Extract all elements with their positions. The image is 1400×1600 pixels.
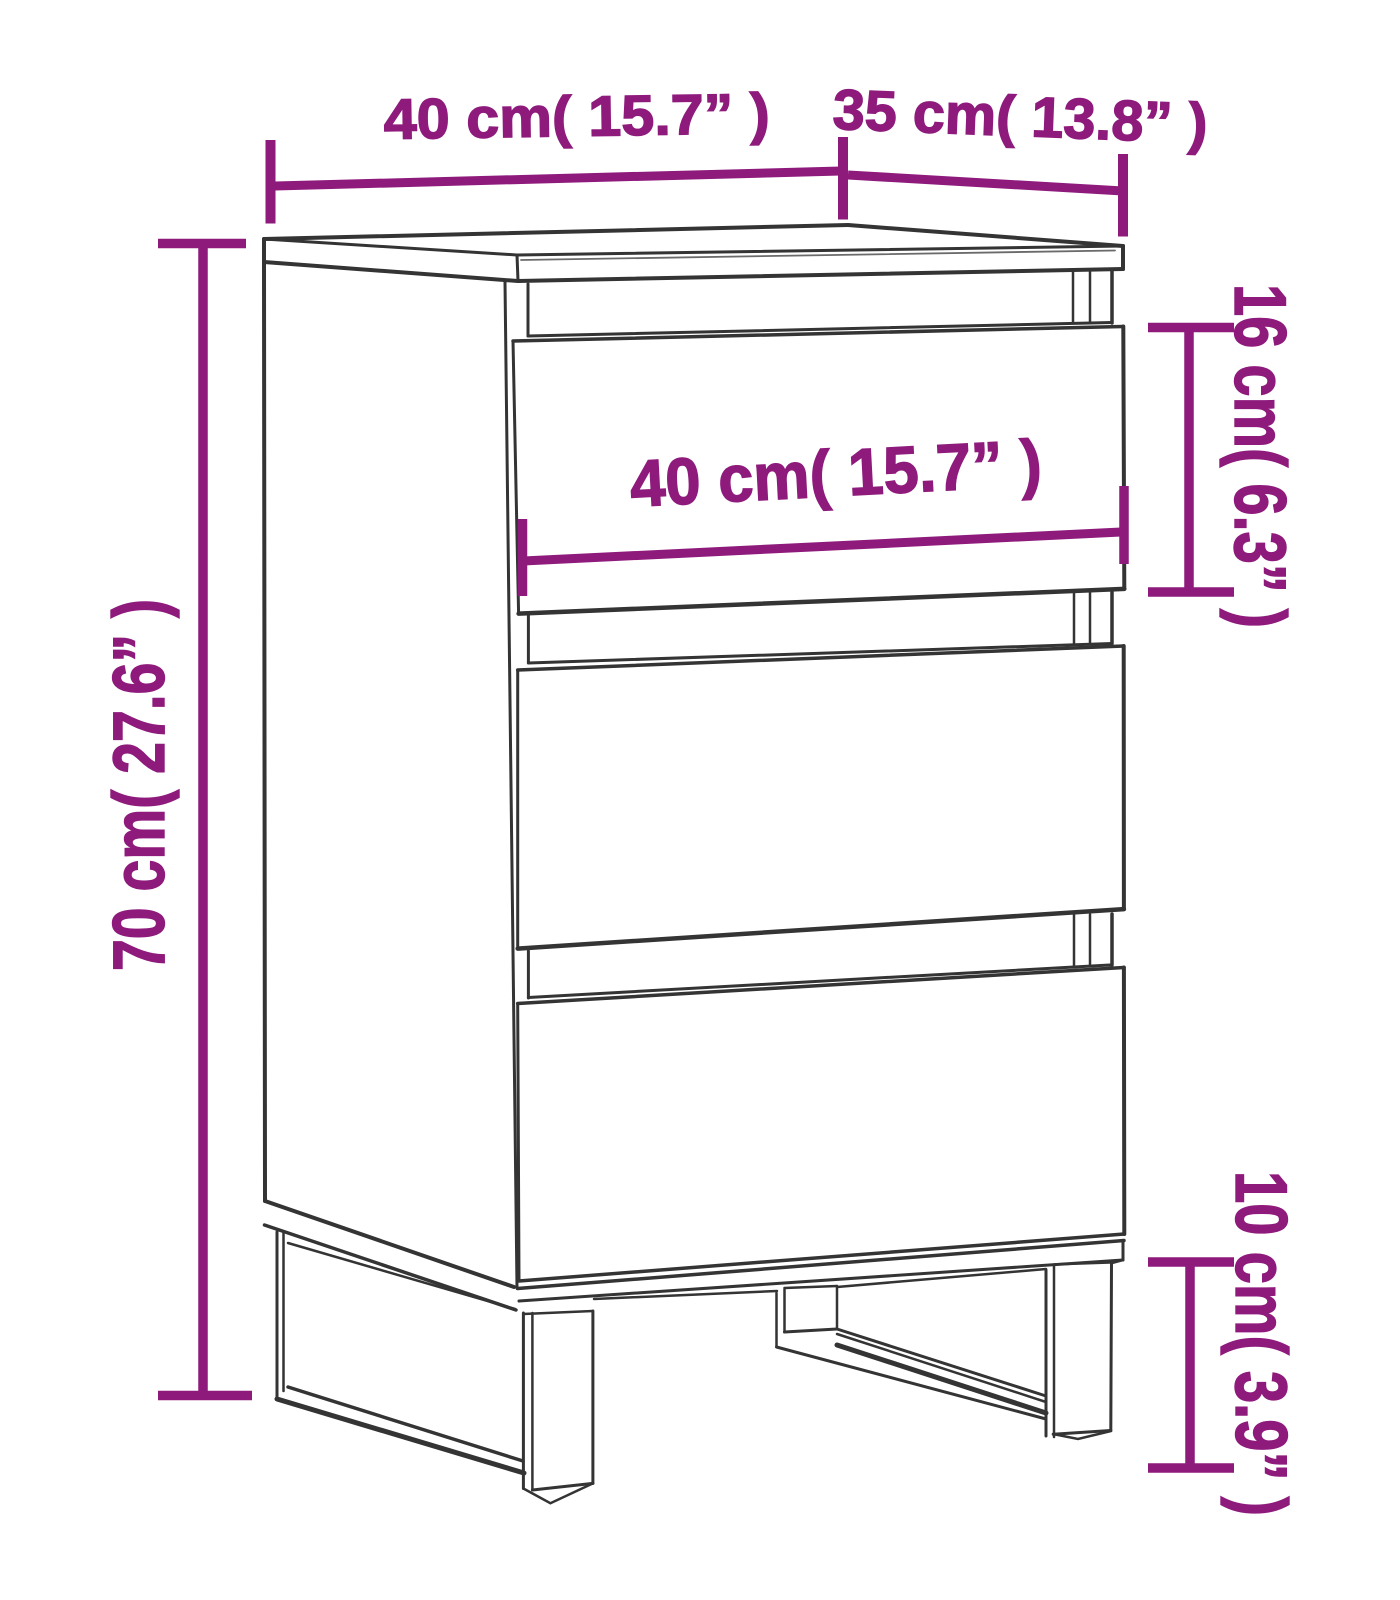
svg-text:70 cm( 27.6” ): 70 cm( 27.6” ) [99,599,180,971]
svg-text:40 cm( 15.7” ): 40 cm( 15.7” ) [383,82,770,152]
svg-text:10 cm( 3.9” ): 10 cm( 3.9” ) [1220,1171,1301,1516]
svg-text:16 cm( 6.3” ): 16 cm( 6.3” ) [1219,284,1300,628]
